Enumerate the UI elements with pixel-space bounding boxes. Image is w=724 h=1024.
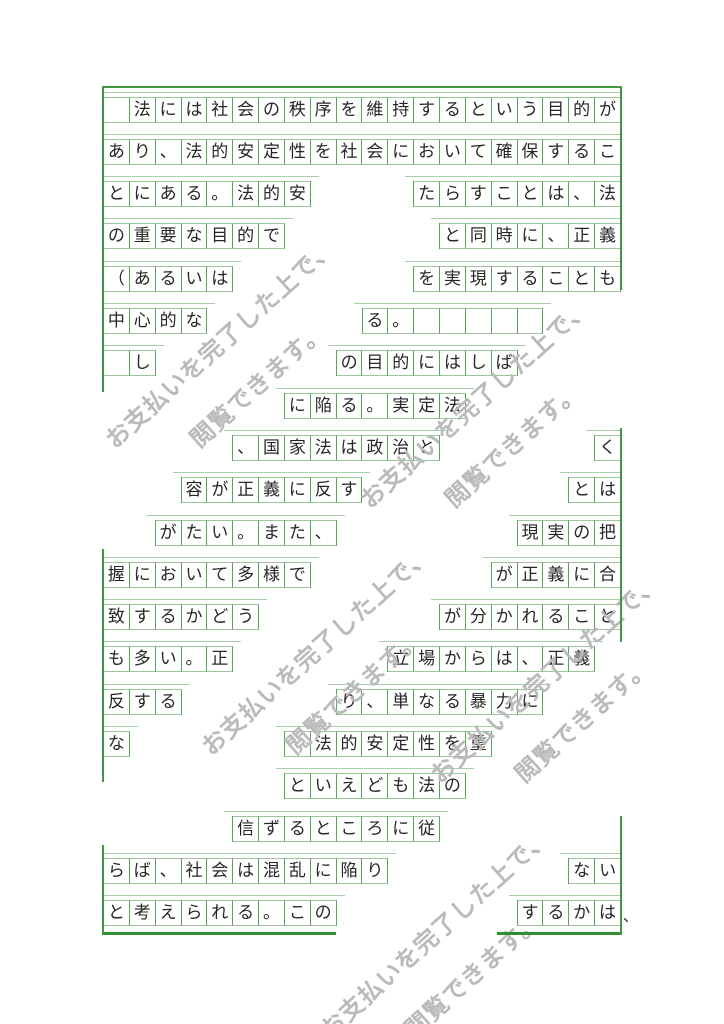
grid-cell: 国	[259, 435, 285, 461]
grid-cell: の	[337, 350, 363, 376]
grid-cell: い	[182, 266, 208, 292]
cell-run: し	[103, 350, 155, 376]
grid-cell	[104, 350, 130, 376]
cell-run: る。	[362, 308, 543, 334]
grid-cell: は	[182, 97, 208, 123]
cell-run: の目的にはしば	[336, 350, 517, 376]
line-end-comma: 、	[623, 905, 638, 926]
grid-cell: 分	[466, 604, 492, 630]
cell-run: 中心的な	[103, 308, 206, 334]
grid-cell: て	[207, 562, 233, 588]
grid-cell: ど	[362, 773, 388, 799]
furigana-rule	[276, 768, 474, 769]
cell-run: が分かれること	[439, 604, 620, 630]
grid-cell: も	[595, 266, 621, 292]
grid-cell: 法	[595, 181, 621, 207]
grid-cell: り	[130, 139, 156, 165]
furigana-rule	[173, 472, 371, 473]
grid-cell: 的	[233, 223, 259, 249]
grid-cell: な	[569, 858, 595, 884]
grid-cell: に	[311, 858, 337, 884]
grid-cell: 致	[104, 604, 130, 630]
watermark-line2: 閲覧できます。	[465, 612, 703, 830]
grid-cell: 的	[207, 139, 233, 165]
grid-cell: て	[466, 139, 492, 165]
grid-cell: 目	[543, 97, 569, 123]
grid-cell: す	[414, 97, 440, 123]
furigana-rule	[509, 515, 620, 516]
grid-cell: 的	[388, 350, 414, 376]
grid-cell: か	[492, 604, 518, 630]
grid-cell: ら	[466, 646, 492, 672]
grid-cell: た	[285, 520, 311, 546]
grid-cell: に	[518, 689, 544, 715]
grid-cell: な	[104, 731, 130, 757]
payment-watermark: お支払いを完了した上で、閲覧できます。	[357, 295, 633, 555]
grid-cell: は	[233, 858, 259, 884]
grid-cell: 的	[337, 731, 363, 757]
grid-cell: 把	[595, 520, 621, 546]
furigana-rule	[405, 176, 620, 177]
grid-cell: 乱	[285, 858, 311, 884]
grid-cell: る	[182, 181, 208, 207]
grid-cell: 社	[207, 97, 233, 123]
grid-cell	[414, 308, 440, 334]
cell-run: 反する	[103, 689, 181, 715]
grid-cell: と	[104, 181, 130, 207]
furigana-rule	[104, 345, 164, 346]
furigana-rule	[104, 92, 620, 93]
grid-cell: す	[543, 139, 569, 165]
grid-cell: を	[414, 266, 440, 292]
grid-cell: に	[518, 223, 544, 249]
grid-cell: る	[543, 900, 569, 926]
grid-cell: い	[440, 139, 466, 165]
cell-run: 致するかどう	[103, 604, 258, 630]
grid-cell: の	[311, 900, 337, 926]
grid-cell: 考	[130, 900, 156, 926]
grid-cell: い	[182, 562, 208, 588]
grid-cell: 反	[104, 689, 130, 715]
grid-cell: 義	[543, 562, 569, 588]
grid-cell: 要	[156, 223, 182, 249]
grid-cell: と	[569, 477, 595, 503]
frame-bottom	[102, 932, 336, 935]
grid-cell: る	[569, 139, 595, 165]
grid-cell: 正	[543, 646, 569, 672]
grid-cell: 、	[311, 520, 337, 546]
grid-cell: な	[182, 223, 208, 249]
grid-cell: 義	[259, 477, 285, 503]
furigana-rule	[509, 895, 620, 896]
cell-run: が正義に合	[491, 562, 620, 588]
cell-run: 現実の把	[517, 520, 620, 546]
grid-cell: こ	[285, 900, 311, 926]
grid-cell: 多	[233, 562, 259, 588]
grid-cell: 法	[414, 773, 440, 799]
grid-cell: 従	[414, 816, 440, 842]
grid-cell: に	[414, 350, 440, 376]
frame-right	[620, 428, 622, 642]
cell-run: 法には社会の秩序を維持するという目的が	[103, 97, 620, 123]
grid-cell: 、	[569, 181, 595, 207]
grid-cell: と	[104, 900, 130, 926]
grid-cell: る	[440, 97, 466, 123]
grid-cell: す	[130, 689, 156, 715]
grid-cell: 中	[104, 308, 130, 334]
grid-cell: 法	[130, 97, 156, 123]
cell-run: く	[594, 435, 620, 461]
grid-cell: ず	[259, 816, 285, 842]
grid-cell: す	[518, 900, 544, 926]
grid-cell: い	[207, 520, 233, 546]
grid-cell: 暴	[466, 689, 492, 715]
cell-run: たらすことは、法	[413, 181, 620, 207]
grid-cell: な	[414, 689, 440, 715]
cell-run: の重要な目的で	[103, 223, 284, 249]
grid-cell: 同	[466, 223, 492, 249]
grid-cell: い	[156, 646, 182, 672]
grid-cell: の	[259, 97, 285, 123]
grid-cell: 目	[362, 350, 388, 376]
furigana-rule	[104, 641, 241, 642]
grid-cell: 会	[362, 139, 388, 165]
furigana-rule	[354, 303, 552, 304]
grid-cell: く	[595, 435, 621, 461]
grid-cell: 握	[104, 562, 130, 588]
grid-cell: え	[156, 900, 182, 926]
grid-cell: し	[466, 350, 492, 376]
grid-cell: に	[156, 97, 182, 123]
grid-cell: る	[440, 689, 466, 715]
grid-cell: は	[595, 900, 621, 926]
grid-cell: と	[311, 816, 337, 842]
frame-left	[102, 549, 104, 782]
grid-cell: 治	[388, 435, 414, 461]
grid-cell: か	[182, 604, 208, 630]
grid-cell: た	[414, 181, 440, 207]
grid-cell: 反	[311, 477, 337, 503]
grid-cell: 法	[182, 139, 208, 165]
grid-cell: 。	[388, 308, 414, 334]
grid-cell: の	[440, 773, 466, 799]
grid-cell: 時	[492, 223, 518, 249]
grid-cell: し	[130, 350, 156, 376]
grid-cell: ら	[104, 858, 130, 884]
grid-cell: え	[337, 773, 363, 799]
grid-cell: 家	[285, 435, 311, 461]
cell-run: 信ずるところに従	[232, 816, 439, 842]
grid-cell: 場	[414, 646, 440, 672]
furigana-rule	[224, 430, 448, 431]
grid-cell: 安	[233, 139, 259, 165]
grid-cell: ば	[130, 858, 156, 884]
grid-cell: あ	[156, 181, 182, 207]
cell-run: 容が正義に反す	[181, 477, 362, 503]
grid-cell: と	[285, 773, 311, 799]
grid-cell: ら	[182, 900, 208, 926]
grid-cell: 実	[440, 266, 466, 292]
furigana-rule	[405, 261, 620, 262]
furigana-rule	[104, 726, 138, 727]
grid-cell: 的	[569, 97, 595, 123]
grid-cell: 陥	[311, 393, 337, 419]
frame-right	[620, 86, 622, 290]
cell-run: を実現することも	[413, 266, 620, 292]
grid-cell: 、	[233, 435, 259, 461]
grid-cell: が	[207, 477, 233, 503]
cell-run: と同時に、正義	[439, 223, 620, 249]
furigana-rule	[104, 599, 267, 600]
grid-cell: 秩	[285, 97, 311, 123]
grid-cell: ば	[492, 350, 518, 376]
furigana-rule	[379, 641, 603, 642]
grid-cell: れ	[207, 900, 233, 926]
grid-cell: 様	[259, 562, 285, 588]
frame-top	[102, 86, 622, 88]
grid-cell: 会	[233, 97, 259, 123]
grid-cell: り	[337, 689, 363, 715]
grid-cell: こ	[595, 139, 621, 165]
grid-cell: と	[440, 223, 466, 249]
cell-run: とにある。法的安	[103, 181, 310, 207]
furigana-rule	[560, 472, 620, 473]
grid-cell: 法	[311, 731, 337, 757]
grid-cell: 政	[362, 435, 388, 461]
furigana-rule	[104, 176, 319, 177]
grid-cell: 法	[311, 435, 337, 461]
grid-cell: で	[285, 562, 311, 588]
document-page: 法には社会の秩序を維持するという目的があり、法的安定性を社会において確保すること…	[0, 0, 724, 1024]
cell-run: ない	[568, 858, 620, 884]
grid-cell: こ	[337, 816, 363, 842]
frame-left	[102, 845, 104, 935]
grid-cell: お	[414, 139, 440, 165]
frame-right	[620, 816, 622, 935]
grid-cell: 保	[518, 139, 544, 165]
grid-cell	[440, 308, 466, 334]
grid-cell: 単	[388, 689, 414, 715]
grid-cell: 、	[518, 646, 544, 672]
grid-cell: を	[337, 97, 363, 123]
grid-cell: 、	[156, 139, 182, 165]
grid-cell: は	[543, 181, 569, 207]
grid-cell: こ	[492, 181, 518, 207]
grid-cell: に	[285, 477, 311, 503]
grid-cell: 性	[414, 731, 440, 757]
grid-cell: う	[518, 97, 544, 123]
cell-run: な	[103, 731, 129, 757]
grid-cell: る	[518, 266, 544, 292]
grid-cell: 。	[182, 646, 208, 672]
grid-cell: こ	[569, 604, 595, 630]
grid-cell: 正	[233, 477, 259, 503]
grid-cell: 容	[182, 477, 208, 503]
grid-cell: ら	[440, 181, 466, 207]
frame-bottom	[497, 932, 622, 935]
cell-run: も多い。正	[103, 646, 232, 672]
grid-cell: す	[466, 181, 492, 207]
grid-cell: 的	[156, 308, 182, 334]
grid-cell: 、	[285, 731, 311, 757]
furigana-rule	[431, 599, 620, 600]
grid-cell: に	[388, 816, 414, 842]
grid-cell: 混	[259, 858, 285, 884]
grid-cell: こ	[543, 266, 569, 292]
furigana-rule	[328, 684, 552, 685]
grid-cell: は	[337, 435, 363, 461]
furigana-rule	[431, 218, 620, 219]
grid-cell: と	[569, 266, 595, 292]
grid-cell: る	[233, 900, 259, 926]
grid-cell: す	[337, 477, 363, 503]
grid-cell: が	[492, 562, 518, 588]
grid-cell: 的	[259, 181, 285, 207]
cell-run: がたい。また、	[155, 520, 336, 546]
grid-cell: ま	[259, 520, 285, 546]
grid-cell: な	[182, 308, 208, 334]
grid-cell: 立	[388, 646, 414, 672]
grid-cell: 力	[492, 689, 518, 715]
cell-run: といえども法の	[284, 773, 465, 799]
grid-cell: 安	[362, 731, 388, 757]
grid-cell: る	[156, 689, 182, 715]
cell-run: あり、法的安定性を社会において確保するこ	[103, 139, 620, 165]
grid-cell	[466, 308, 492, 334]
furigana-rule	[104, 303, 215, 304]
grid-cell: か	[440, 646, 466, 672]
cell-run: り、単なる暴力に	[336, 689, 543, 715]
grid-cell: 、	[362, 689, 388, 715]
grid-cell: 陥	[337, 858, 363, 884]
grid-cell: に	[285, 393, 311, 419]
grid-cell: と	[595, 604, 621, 630]
grid-cell: 正	[518, 562, 544, 588]
grid-cell: た	[182, 520, 208, 546]
grid-cell: 現	[518, 520, 544, 546]
grid-cell	[104, 97, 130, 123]
grid-cell: は	[492, 646, 518, 672]
grid-cell: 序	[311, 97, 337, 123]
grid-cell: る	[285, 816, 311, 842]
grid-cell: 安	[285, 181, 311, 207]
grid-cell	[518, 308, 544, 334]
furigana-rule	[560, 853, 620, 854]
grid-cell: 多	[130, 646, 156, 672]
grid-cell: 確	[492, 139, 518, 165]
grid-cell: 目	[207, 223, 233, 249]
grid-cell: 信	[233, 816, 259, 842]
grid-cell: か	[569, 900, 595, 926]
furigana-rule	[276, 726, 500, 727]
cell-run: 、法的安定性を重	[284, 731, 491, 757]
furigana-rule	[104, 134, 620, 135]
cell-run: に陥る。実定法	[284, 393, 465, 419]
grid-cell: で	[259, 223, 285, 249]
grid-cell: 正	[207, 646, 233, 672]
grid-cell: も	[388, 773, 414, 799]
grid-cell: の	[569, 520, 595, 546]
grid-cell: と	[518, 181, 544, 207]
grid-cell: 現	[466, 266, 492, 292]
grid-cell: る	[543, 604, 569, 630]
grid-cell: ど	[207, 604, 233, 630]
cell-run: （あるいは	[103, 266, 232, 292]
furigana-rule	[586, 430, 620, 431]
grid-cell: に	[388, 139, 414, 165]
grid-cell: も	[104, 646, 130, 672]
grid-cell: が	[440, 604, 466, 630]
grid-cell: 、	[156, 858, 182, 884]
cell-run: とは	[568, 477, 620, 503]
grid-cell: る	[363, 308, 389, 334]
grid-cell: は	[207, 266, 233, 292]
grid-cell: あ	[130, 266, 156, 292]
grid-cell: 社	[182, 858, 208, 884]
furigana-rule	[104, 557, 319, 558]
furigana-rule	[104, 895, 345, 896]
grid-cell: 法	[440, 393, 466, 419]
furigana-rule	[104, 218, 293, 219]
grid-cell: 定	[259, 139, 285, 165]
grid-cell: 持	[388, 97, 414, 123]
grid-cell: 定	[388, 731, 414, 757]
grid-cell: 維	[362, 97, 388, 123]
furigana-rule	[104, 853, 396, 854]
furigana-rule	[104, 261, 241, 262]
grid-cell: 。	[207, 181, 233, 207]
grid-cell: 合	[595, 562, 621, 588]
cell-run: 握において多様で	[103, 562, 310, 588]
grid-cell: 実	[388, 393, 414, 419]
cell-run: らば、社会は混乱に陥り	[103, 858, 387, 884]
grid-cell: （	[104, 266, 130, 292]
grid-cell: 実	[543, 520, 569, 546]
grid-cell: れ	[518, 604, 544, 630]
grid-cell: 会	[207, 858, 233, 884]
grid-cell: と	[466, 97, 492, 123]
grid-cell: に	[130, 181, 156, 207]
grid-cell: に	[130, 562, 156, 588]
furigana-rule	[224, 811, 448, 812]
grid-cell: は	[440, 350, 466, 376]
grid-cell: 、	[543, 223, 569, 249]
grid-cell: 。	[259, 900, 285, 926]
furigana-rule	[104, 684, 190, 685]
cell-run: するかは	[517, 900, 620, 926]
grid-cell: る	[337, 393, 363, 419]
grid-cell: 性	[285, 139, 311, 165]
grid-cell: あ	[104, 139, 130, 165]
grid-cell: の	[104, 223, 130, 249]
grid-cell: 義	[569, 646, 595, 672]
grid-cell: 正	[569, 223, 595, 249]
grid-cell: 定	[414, 393, 440, 419]
grid-cell: は	[595, 477, 621, 503]
grid-cell: お	[156, 562, 182, 588]
grid-cell: い	[492, 97, 518, 123]
grid-cell: る	[156, 604, 182, 630]
grid-cell: 重	[130, 223, 156, 249]
grid-cell: 法	[233, 181, 259, 207]
cell-run: 、国家法は政治と	[232, 435, 439, 461]
grid-cell: る	[156, 266, 182, 292]
grid-cell: に	[569, 562, 595, 588]
grid-cell: が	[595, 97, 621, 123]
grid-cell: 。	[233, 520, 259, 546]
cell-run: と考えられる。この	[103, 900, 336, 926]
furigana-rule	[147, 515, 345, 516]
